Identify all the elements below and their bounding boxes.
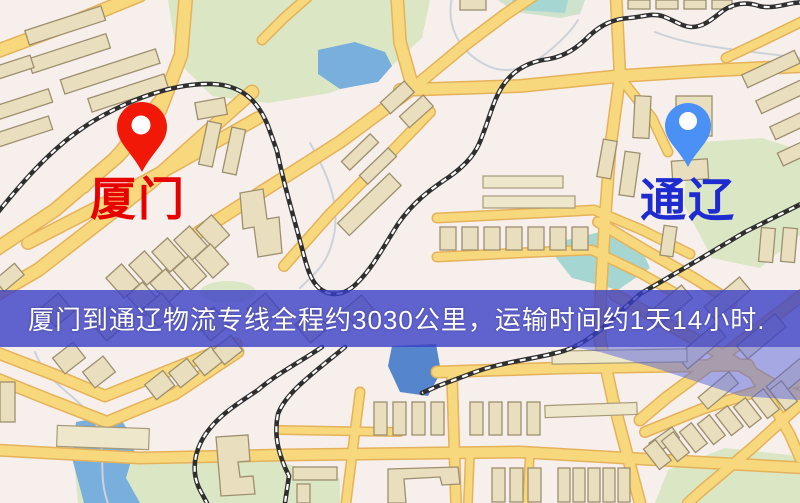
logistics-route-map: 厦门到通辽物流专线全程约3030公里，运输时间约1天14小时. 厦门 通辽 xyxy=(0,0,800,503)
route-info-text: 厦门到通辽物流专线全程约3030公里，运输时间约1天14小时. xyxy=(28,300,765,337)
origin-city-label: 厦门 xyxy=(90,176,186,222)
destination-city-label: 通辽 xyxy=(640,177,736,223)
map-canvas xyxy=(0,0,800,503)
route-info-banner: 厦门到通辽物流专线全程约3030公里，运输时间约1天14小时. xyxy=(0,290,800,347)
